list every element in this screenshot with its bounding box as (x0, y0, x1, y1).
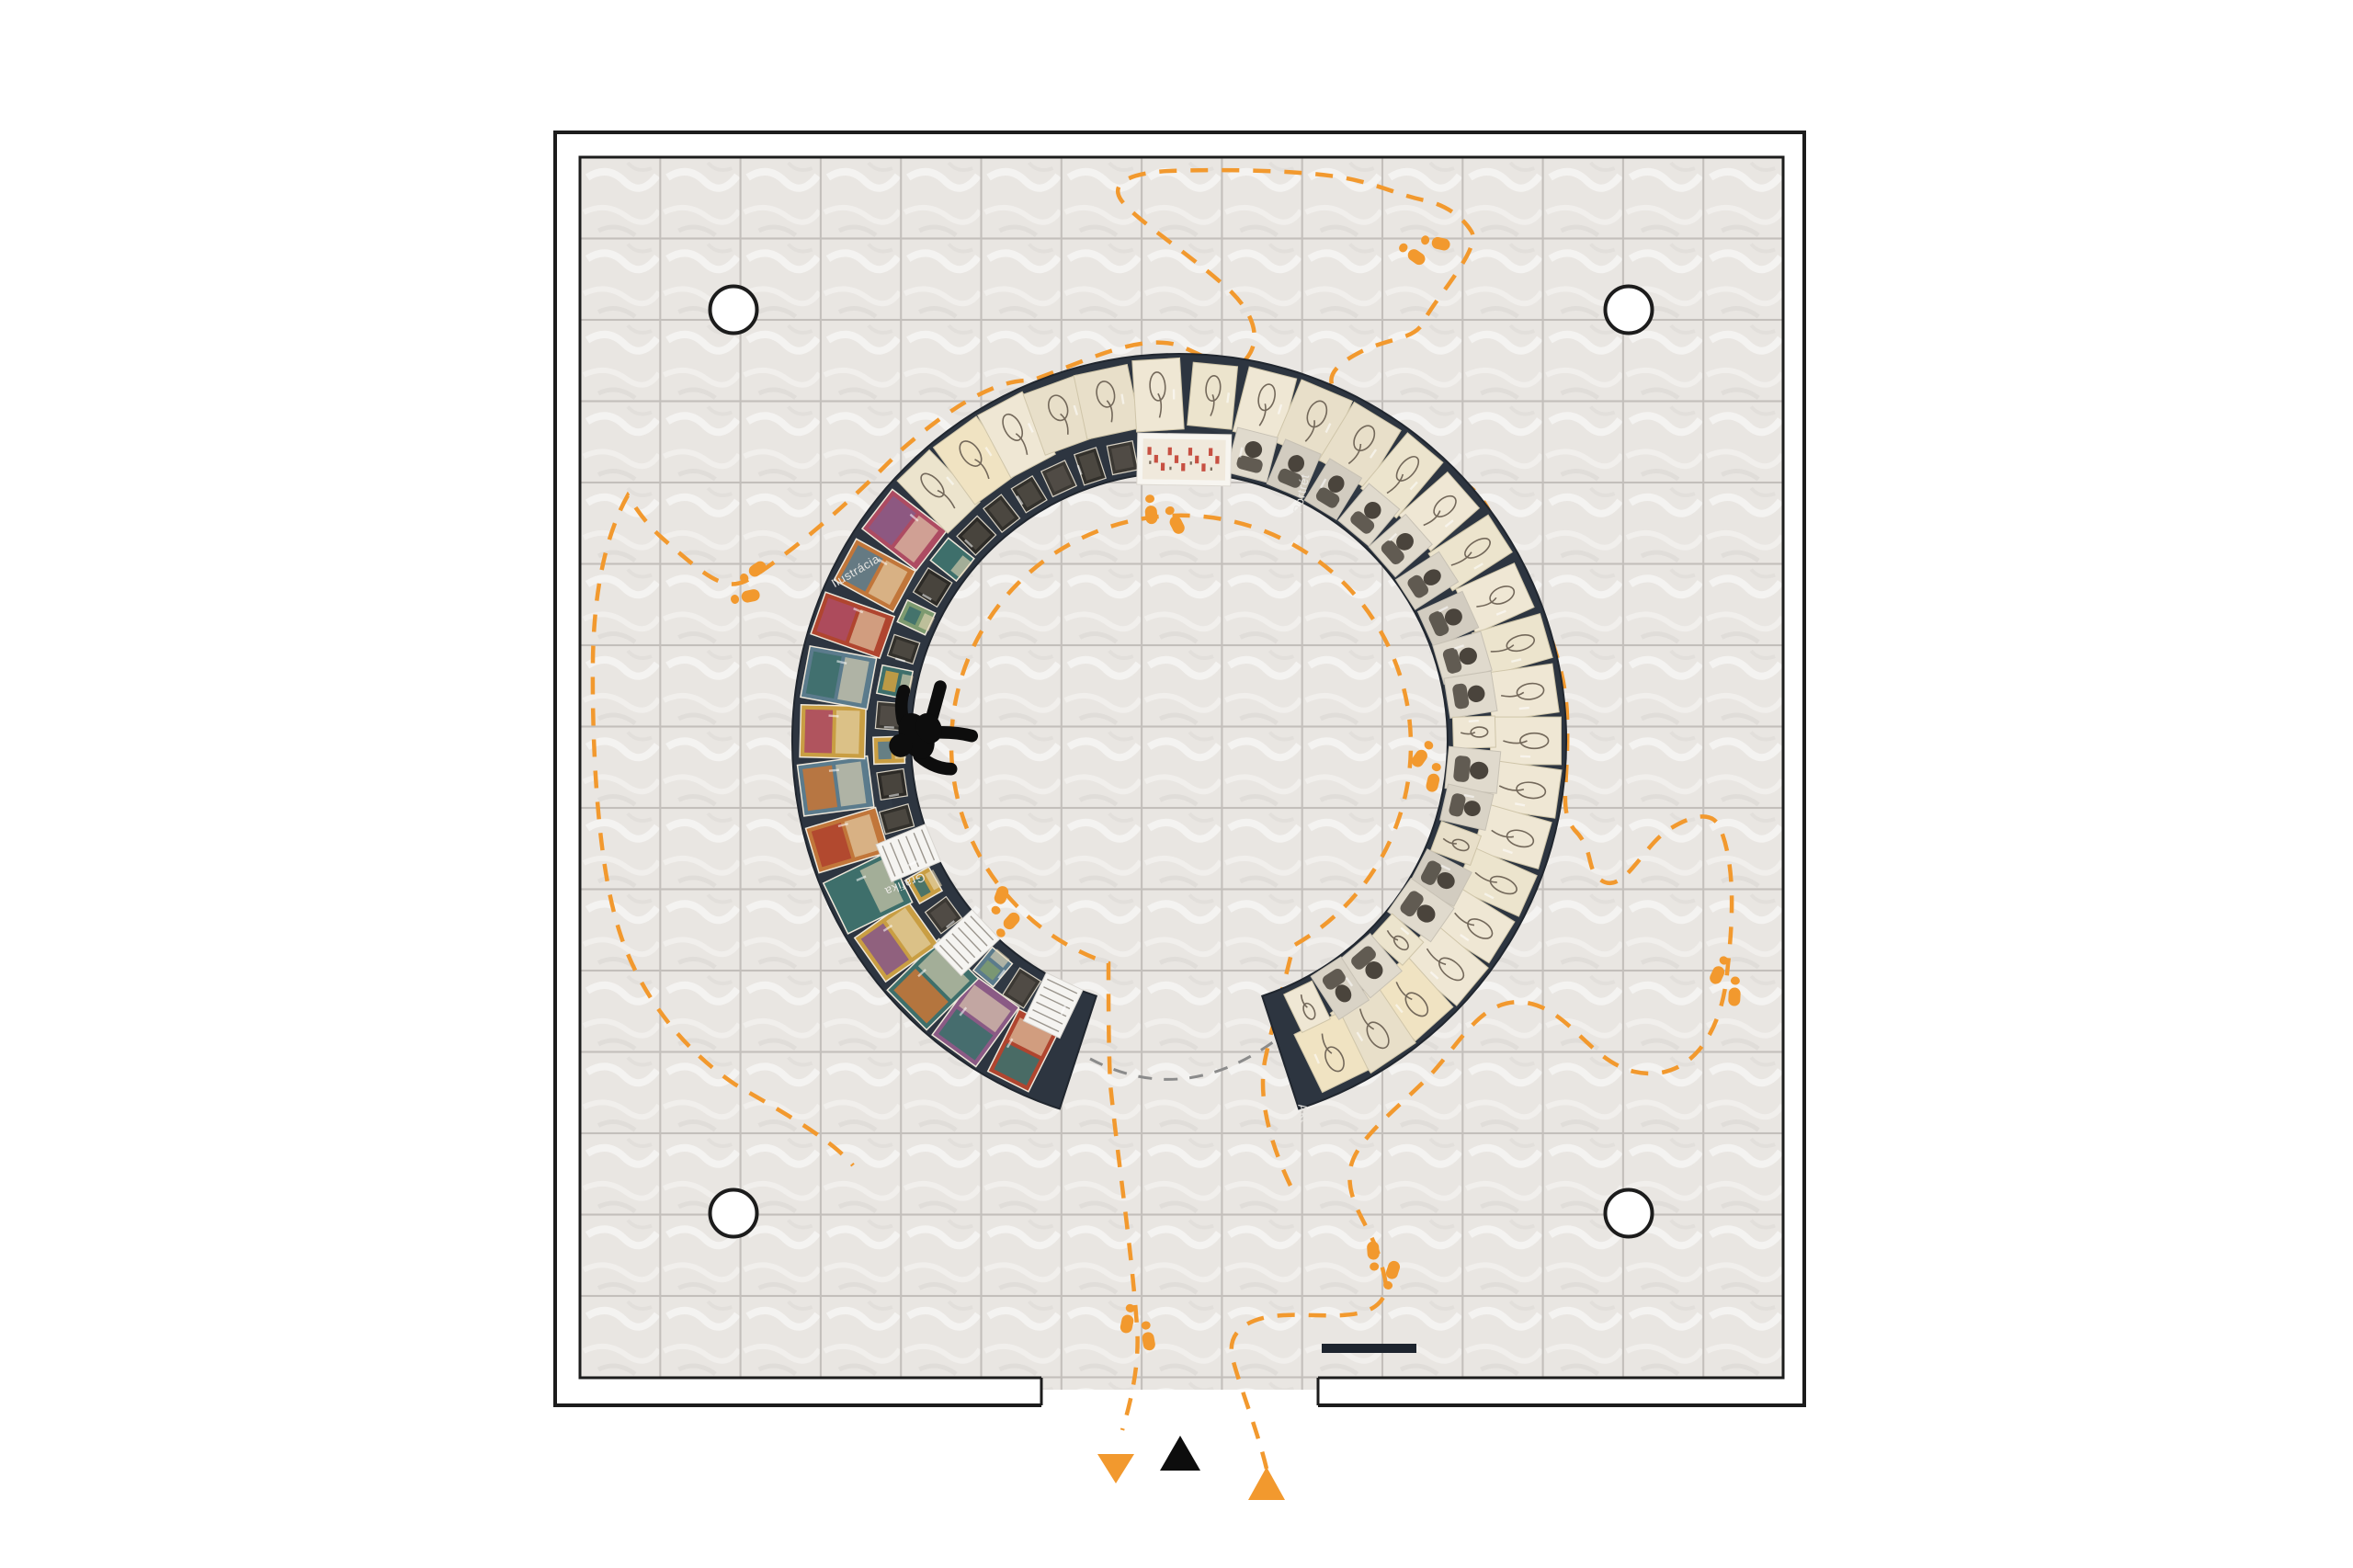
exit-arrow-icon (1097, 1454, 1134, 1483)
tiled-floor (580, 157, 1783, 1378)
entry-arrow-icon (1248, 1467, 1285, 1500)
artwork-thumbnail (800, 705, 866, 759)
structural-column (1606, 1190, 1653, 1237)
artwork-thumbnail (1188, 362, 1238, 429)
artwork-thumbnail (798, 756, 874, 816)
structural-column (1606, 287, 1653, 334)
artwork-thumbnail (1107, 441, 1138, 475)
structural-column (710, 287, 757, 334)
structural-column (710, 1190, 757, 1237)
artwork-thumbnail (1132, 358, 1184, 431)
entrance-bench (1322, 1344, 1416, 1353)
artwork-thumbnail (1485, 664, 1559, 722)
floor-tiles (580, 157, 1783, 1390)
featured-red-print (1137, 433, 1232, 486)
entrance-threshold (1041, 1378, 1318, 1390)
artwork-thumbnail (1444, 671, 1497, 718)
floor-plan-stage: IlustráciaGrafikaPortrétAkt (0, 0, 2353, 1568)
artwork-caption-mark (1173, 389, 1176, 399)
floor-plan-drawing: IlustráciaGrafikaPortrétAkt (0, 0, 2353, 1568)
entrance-marker-icon (1160, 1436, 1200, 1471)
artwork-caption-mark (1520, 756, 1530, 758)
